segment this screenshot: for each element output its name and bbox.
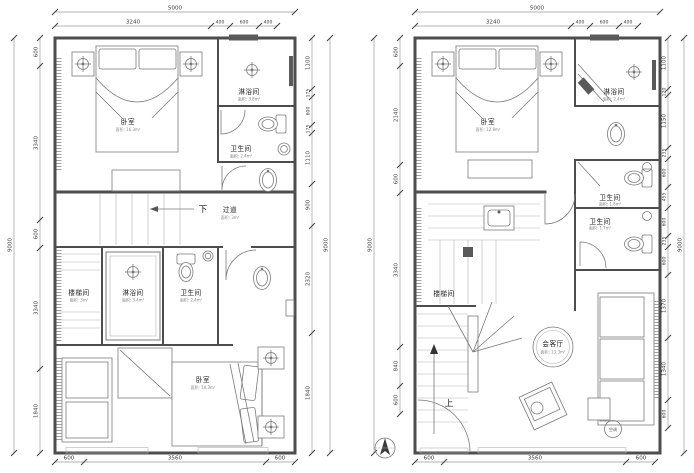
room-area-label: 面积: 1.8m² [599, 201, 622, 207]
up-annotation: 上 [445, 399, 454, 409]
dim-label: 400 [264, 20, 273, 26]
double-bed [172, 362, 262, 446]
double-bed [96, 46, 178, 152]
room-area-label: 面积: 2.4m² [603, 96, 626, 102]
wall-hatch [417, 206, 422, 302]
room-label: 会客厅 [542, 339, 563, 348]
dim-label: 9000 [368, 237, 374, 252]
wall-hatch [57, 58, 62, 170]
dim-label: 600 [662, 257, 668, 266]
room-label: 楼梯间 [68, 288, 89, 297]
dim-label: 400 [576, 20, 585, 26]
right-basin-nook [608, 123, 625, 146]
dim-label: 1840 [306, 385, 312, 400]
room-label: 淋浴间 [122, 288, 143, 297]
room-area-label: 面积: 16.3m² [115, 126, 140, 132]
wash-basin [254, 267, 271, 290]
dim-label: 600 [306, 107, 312, 116]
dim-label: 3560 [168, 456, 183, 462]
double-bed [456, 46, 538, 152]
dim-label: 1340 [662, 361, 668, 376]
room-area-label: 面积: 2.4m² [180, 297, 203, 303]
dim-label: 2140 [394, 107, 400, 122]
dim-label: 5000 [530, 6, 545, 12]
dim-label: 3560 [528, 456, 543, 462]
wash-basin [260, 169, 277, 192]
wall-hatch [655, 300, 660, 400]
dim-label: 600 [240, 20, 249, 26]
bed-bench [468, 160, 532, 178]
dim-label: 455 [662, 193, 668, 202]
dim-label: 600 [394, 394, 400, 405]
dim-label: 600 [34, 46, 40, 57]
dim-label: 9000 [8, 237, 14, 252]
dim-label: 600 [662, 410, 668, 419]
dim-label: 900 [306, 199, 312, 210]
dim-label: 2320 [306, 271, 312, 286]
wardrobe [62, 358, 112, 442]
dim-label: 1370 [662, 298, 668, 313]
dim-label: 600 [662, 169, 668, 178]
stair-rail [468, 316, 478, 392]
dim-label: 600 [394, 46, 400, 57]
room-label: 卧室 [121, 117, 135, 126]
dim-label: 840 [394, 360, 400, 371]
towel-radiator [289, 56, 293, 86]
ac-label: 空调 [609, 426, 617, 432]
room-area-label: 面积: 3m² [70, 297, 89, 303]
left-bedroom-bottom: 卧室 面积: 14.3m² [62, 347, 284, 446]
room-label: 卧室 [481, 117, 495, 126]
dim-label: 600 [34, 228, 40, 239]
room-area-label: 面积: 2.4m² [230, 153, 253, 159]
dim-label: 9000 [678, 237, 684, 252]
room-label: 楼梯间 [433, 289, 454, 298]
room-label: 淋浴间 [238, 87, 259, 96]
dim-label: 1150 [662, 113, 668, 128]
dim-label: 3340 [34, 300, 40, 315]
stair-newel [463, 247, 473, 257]
dim-label: 120 [662, 88, 668, 97]
dim-label: 175 [306, 89, 312, 98]
dim-label: 5000 [168, 6, 183, 12]
room-area-label: 面积: 12.8m² [475, 126, 500, 132]
dim-label: 3340 [394, 262, 400, 277]
room-label: 过道 [223, 205, 237, 214]
dim-label: 600 [424, 456, 435, 462]
room-area-label: 面积: 14.3m² [190, 384, 215, 390]
room-area-label: 面积: 3m² [221, 214, 240, 220]
dim-label: 600 [636, 456, 647, 462]
dim-label: 1110 [306, 150, 312, 165]
floor-plan-drawing: 5000 3240 400 600 400 9000 600 3340 600 … [0, 0, 694, 473]
dim-label: 9000 [324, 237, 330, 252]
room-label: 卧室 [196, 375, 210, 384]
wall-hatch [57, 356, 62, 442]
landing-basin [484, 206, 514, 230]
room-area-label: 面积: 13.3m² [540, 349, 565, 355]
room-area-label: 面积: 1.7m² [589, 225, 612, 231]
dim-label: 235 [662, 237, 668, 246]
dim-label: 600 [600, 20, 609, 26]
dim-label: 1100 [662, 55, 668, 70]
dim-label: 3240 [486, 20, 501, 26]
dim-label: 3340 [34, 135, 40, 150]
dim-label: 600 [394, 173, 400, 184]
dim-label: 400 [624, 20, 633, 26]
dim-label: 235 [662, 149, 668, 158]
room-area-label: 面积: 3.4m² [122, 297, 145, 303]
dim-label: 175 [306, 125, 312, 134]
dim-label: 400 [216, 20, 225, 26]
dim-label: 1100 [306, 55, 312, 70]
dim-label: 600 [662, 218, 668, 227]
room-area-label: 面积: 3.8m² [238, 96, 261, 102]
room-label: 卫生间 [230, 144, 251, 153]
window-bar [229, 35, 258, 41]
dim-label: 600 [64, 456, 75, 462]
window-bar [590, 35, 619, 41]
wash-basin [608, 123, 625, 146]
room-label: 淋浴间 [603, 87, 624, 96]
side-table [588, 398, 610, 420]
dim-label: 600 [275, 456, 286, 462]
dim-label: 3240 [126, 20, 141, 26]
room-label: 卫生间 [180, 288, 201, 297]
down-annotation: 下 [199, 205, 208, 215]
dim-label: 1840 [34, 403, 40, 418]
towel-radiator [652, 60, 656, 90]
wall-hatch [417, 58, 422, 180]
